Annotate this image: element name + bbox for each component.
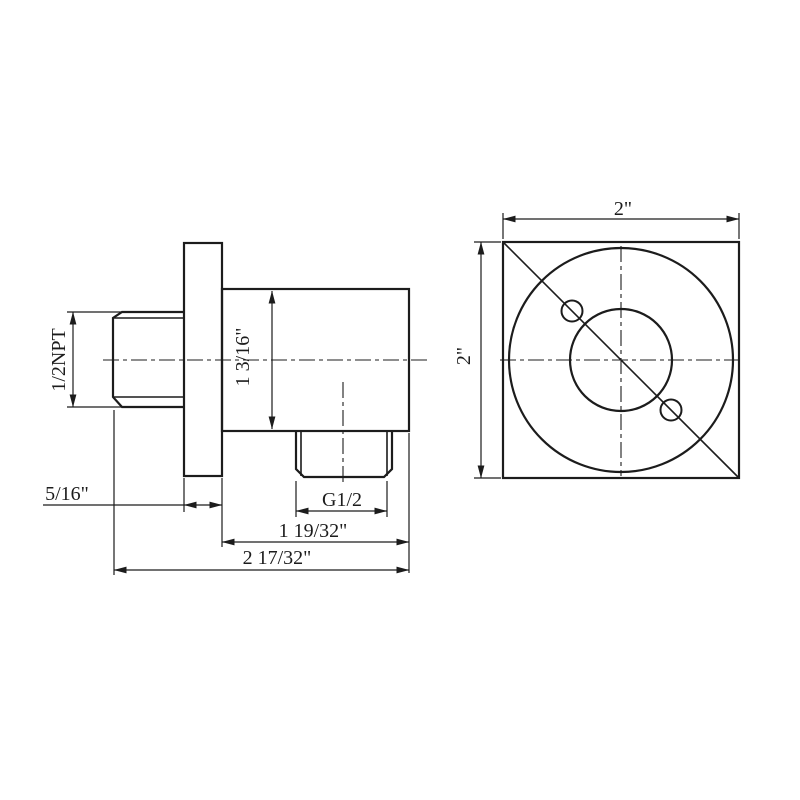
dim-label-body-height: 1 3/16" [232, 328, 254, 387]
dim-label-flange-thickness: 5/16" [45, 483, 89, 505]
dim-plate-height: 2" [453, 242, 501, 478]
dim-label-plate-height: 2" [453, 347, 475, 365]
outlet-thread-root-lines [301, 432, 387, 476]
dim-label-outlet-thread: G1/2 [322, 489, 362, 511]
dim-label-overall-width: 2 17/32" [243, 547, 312, 569]
side-view: 1/2NPT 1 3/16" 5/16" G1/2 1 19/32" [43, 243, 429, 575]
dim-overall-width: 2 17/32" [114, 410, 409, 575]
dim-plate-width: 2" [503, 198, 739, 239]
dim-flange-thickness: 5/16" [43, 478, 222, 547]
drawing-svg: 1/2NPT 1 3/16" 5/16" G1/2 1 19/32" [0, 0, 800, 800]
dim-label-inlet-thread: 1/2NPT [48, 328, 70, 391]
dim-label-body-width: 1 19/32" [279, 520, 348, 542]
front-view: 2" 2" [453, 198, 742, 478]
inlet-thread-root-lines [113, 318, 184, 397]
outlet-thread-outline [296, 431, 392, 477]
dim-outlet-thread: G1/2 [296, 481, 387, 517]
dim-label-plate-width: 2" [614, 198, 632, 220]
technical-drawing: 1/2NPT 1 3/16" 5/16" G1/2 1 19/32" [0, 0, 800, 800]
